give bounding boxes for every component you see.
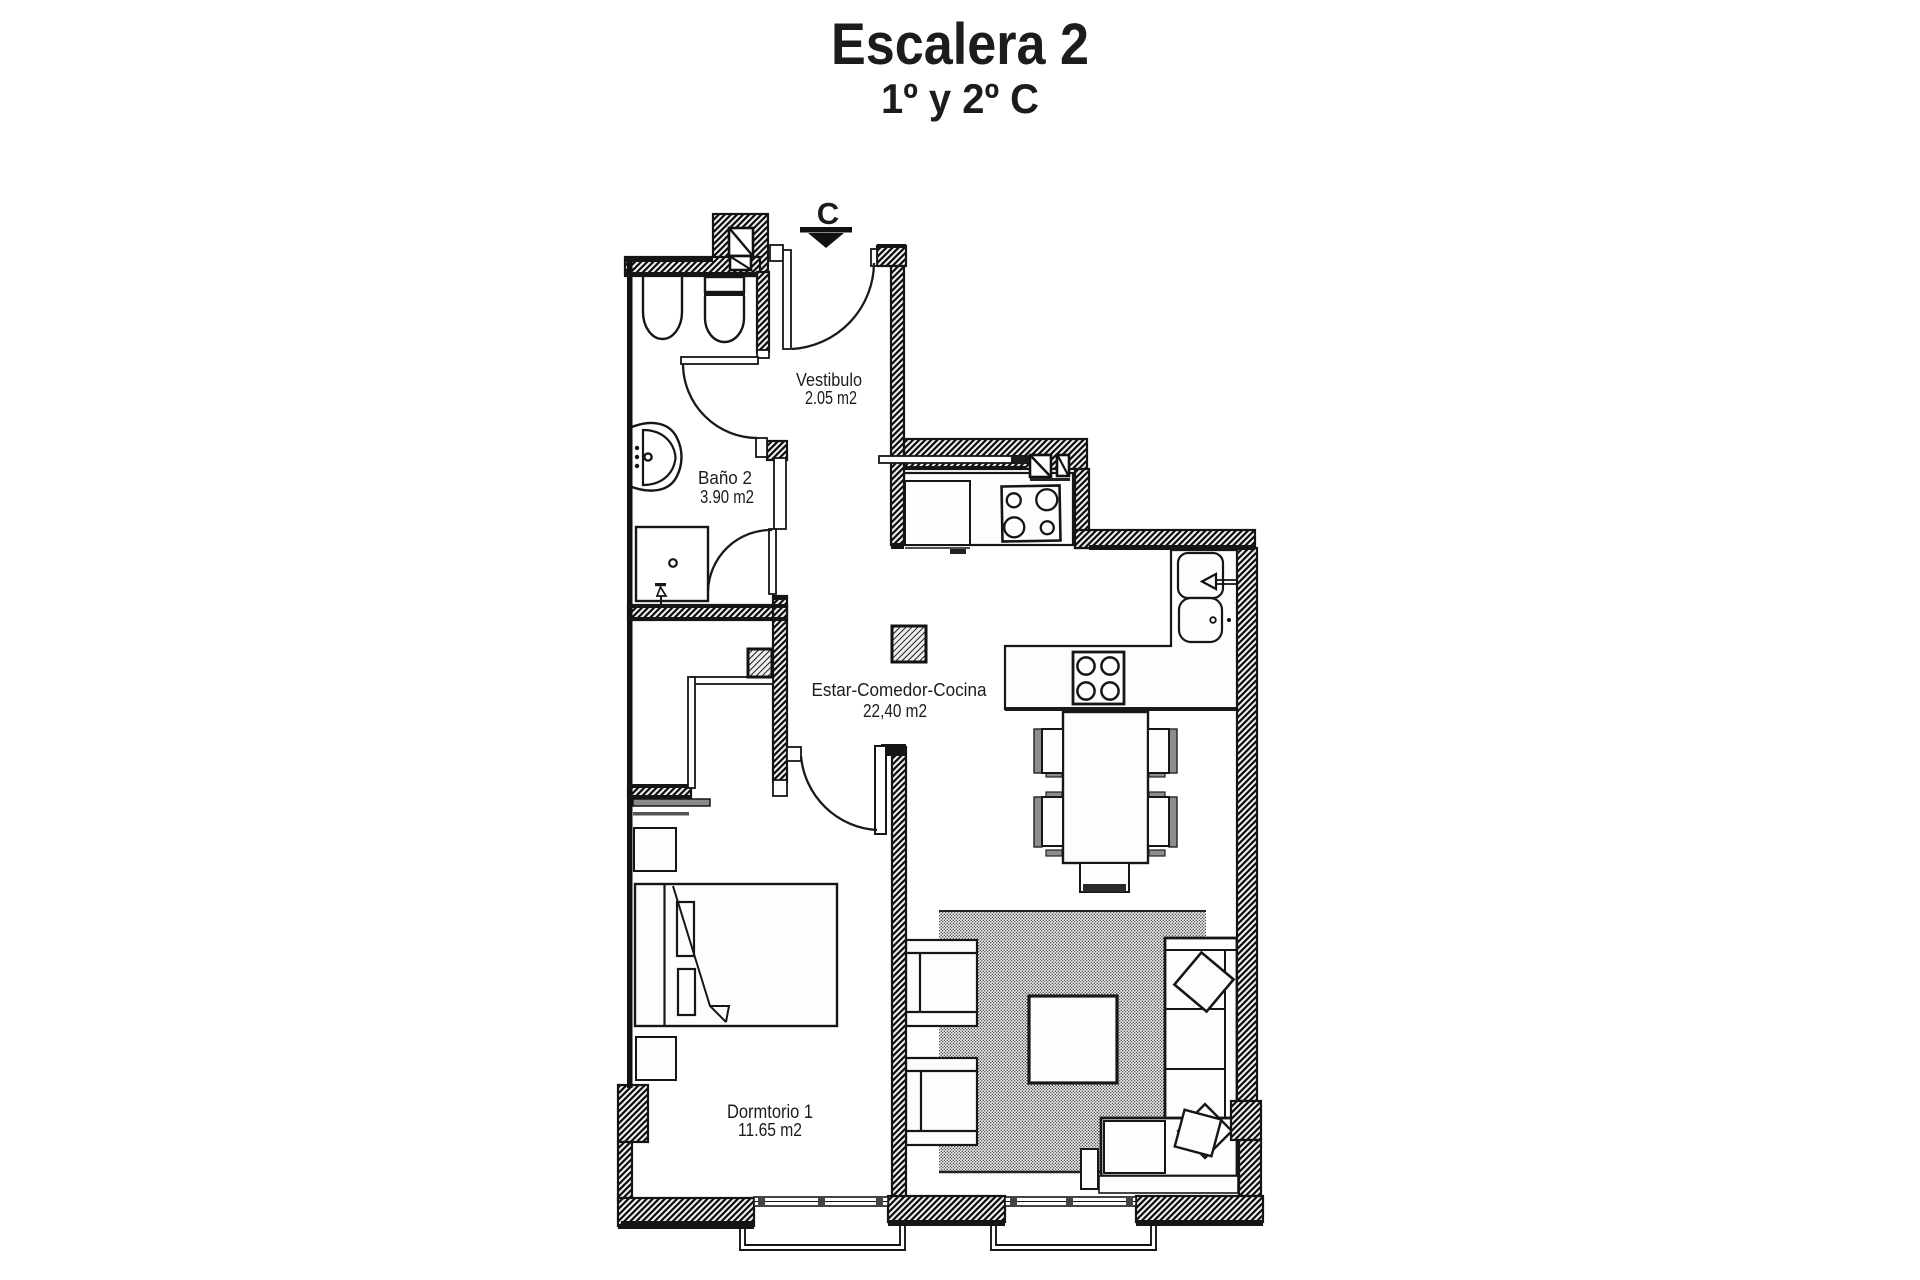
svg-text:11.65 m2: 11.65 m2 xyxy=(738,1120,802,1140)
svg-text:2.05 m2: 2.05 m2 xyxy=(805,388,857,408)
svg-text:3.90 m2: 3.90 m2 xyxy=(700,487,754,507)
svg-text:Estar-Comedor-Cocina: Estar-Comedor-Cocina xyxy=(812,679,988,700)
svg-text:1º y 2º C: 1º y 2º C xyxy=(881,75,1039,122)
svg-text:22,40 m2: 22,40 m2 xyxy=(863,701,927,721)
svg-text:Vestibulo: Vestibulo xyxy=(796,370,862,390)
svg-text:Baño 2: Baño 2 xyxy=(698,468,752,488)
svg-text:C: C xyxy=(817,196,839,231)
svg-text:Escalera 2: Escalera 2 xyxy=(831,12,1089,77)
